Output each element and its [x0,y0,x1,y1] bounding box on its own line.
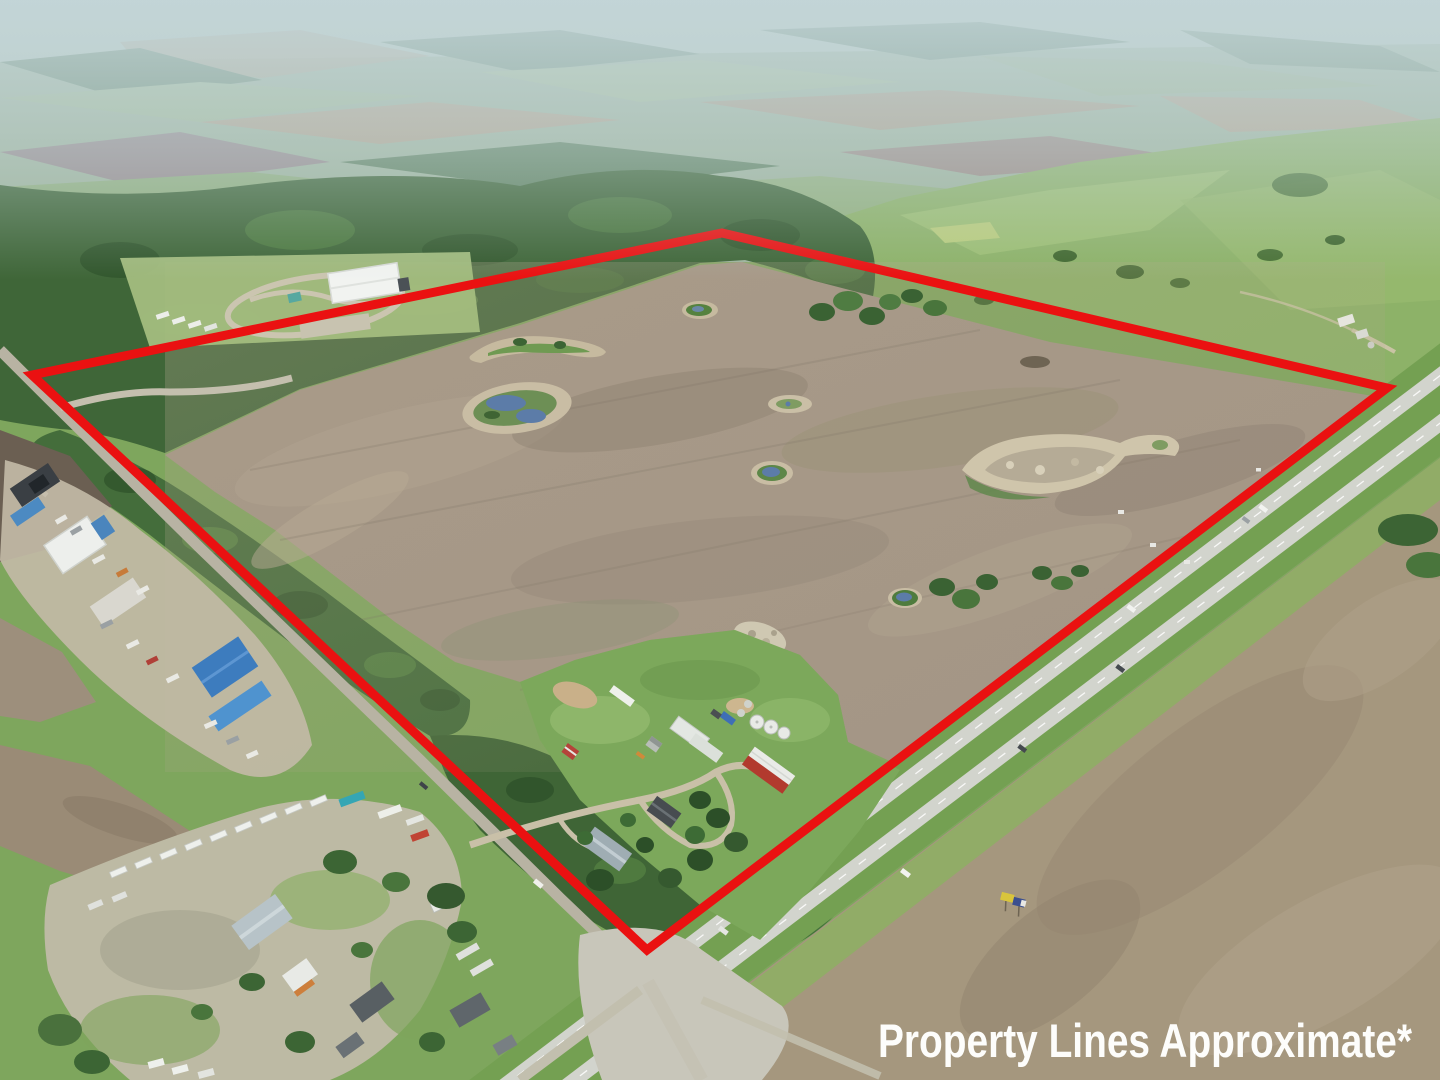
aerial-property-photo: Property Lines Approximate* [0,0,1440,1080]
slough-top-center [682,301,718,319]
slough-small-north [768,395,812,413]
aerial-scene: Property Lines Approximate* [0,0,1440,1080]
atmosphere-haze [0,0,1440,280]
disclaimer-watermark-text: Property Lines Approximate* [878,1014,1413,1067]
pond-southeast [888,588,922,608]
pond-center [751,461,793,485]
